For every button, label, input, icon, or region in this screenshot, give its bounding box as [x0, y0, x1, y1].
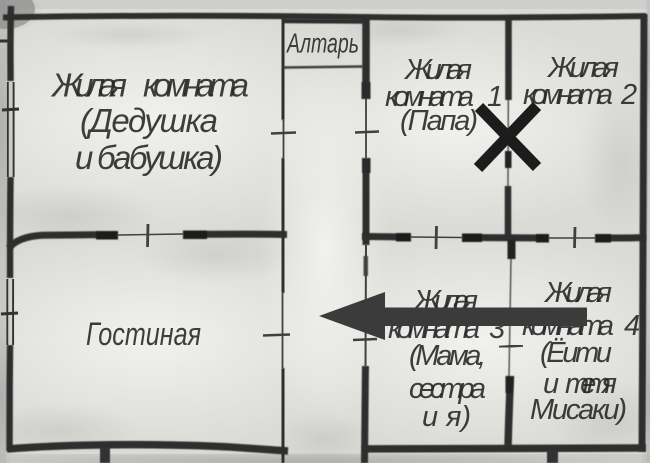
svg-text:Мисаки): Мисаки)	[530, 394, 627, 426]
svg-text:(Ёити: (Ёити	[540, 337, 612, 369]
svg-text:и: и	[422, 401, 438, 433]
svg-text:Жилая: Жилая	[543, 277, 612, 309]
svg-text:Жилая: Жилая	[50, 67, 127, 104]
svg-text:1: 1	[487, 81, 503, 113]
svg-text:(Дедушка: (Дедушка	[80, 102, 218, 139]
svg-text:Алтарь: Алтарь	[286, 28, 359, 59]
svg-text:(Папа): (Папа)	[400, 105, 478, 137]
svg-text:(Мама,: (Мама,	[409, 340, 486, 372]
svg-text:2: 2	[620, 79, 637, 111]
svg-text:4: 4	[624, 310, 640, 342]
svg-text:и: и	[75, 139, 93, 176]
svg-text:комната: комната	[143, 67, 249, 104]
svg-text:бабушка): бабушка)	[97, 139, 223, 176]
svg-text:я): я)	[445, 401, 471, 433]
svg-text:Гостиная: Гостиная	[86, 316, 201, 352]
